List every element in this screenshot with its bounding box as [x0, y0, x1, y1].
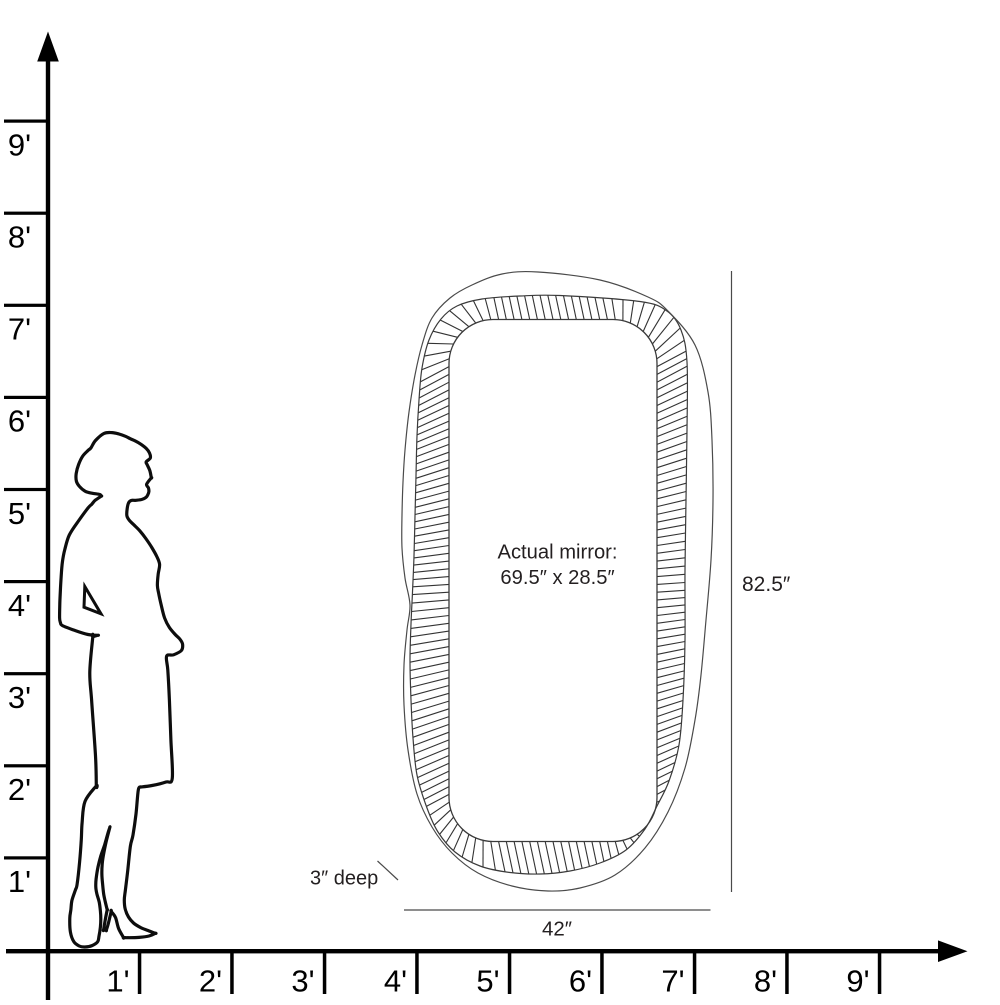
svg-text:82.5″: 82.5″ [742, 573, 791, 596]
svg-text:1': 1' [8, 864, 31, 899]
svg-text:2': 2' [8, 772, 31, 807]
svg-text:69.5″ x 28.5″: 69.5″ x 28.5″ [500, 567, 614, 589]
svg-text:Actual mirror:: Actual mirror: [497, 542, 617, 564]
svg-text:4': 4' [8, 588, 31, 623]
svg-text:7': 7' [661, 963, 684, 998]
svg-text:2': 2' [199, 963, 222, 998]
svg-text:5': 5' [8, 496, 31, 531]
svg-text:6': 6' [569, 963, 592, 998]
svg-text:1': 1' [106, 963, 129, 998]
svg-text:8': 8' [8, 220, 31, 255]
svg-text:5': 5' [476, 963, 499, 998]
svg-text:8': 8' [754, 963, 777, 998]
svg-text:42″: 42″ [542, 918, 572, 941]
svg-text:3': 3' [291, 963, 314, 998]
svg-text:6': 6' [8, 404, 31, 439]
svg-text:4': 4' [384, 963, 407, 998]
svg-text:9': 9' [8, 127, 31, 162]
svg-text:3': 3' [8, 680, 31, 715]
svg-text:3″ deep: 3″ deep [310, 867, 378, 889]
svg-text:9': 9' [846, 963, 869, 998]
svg-text:7': 7' [8, 312, 31, 347]
